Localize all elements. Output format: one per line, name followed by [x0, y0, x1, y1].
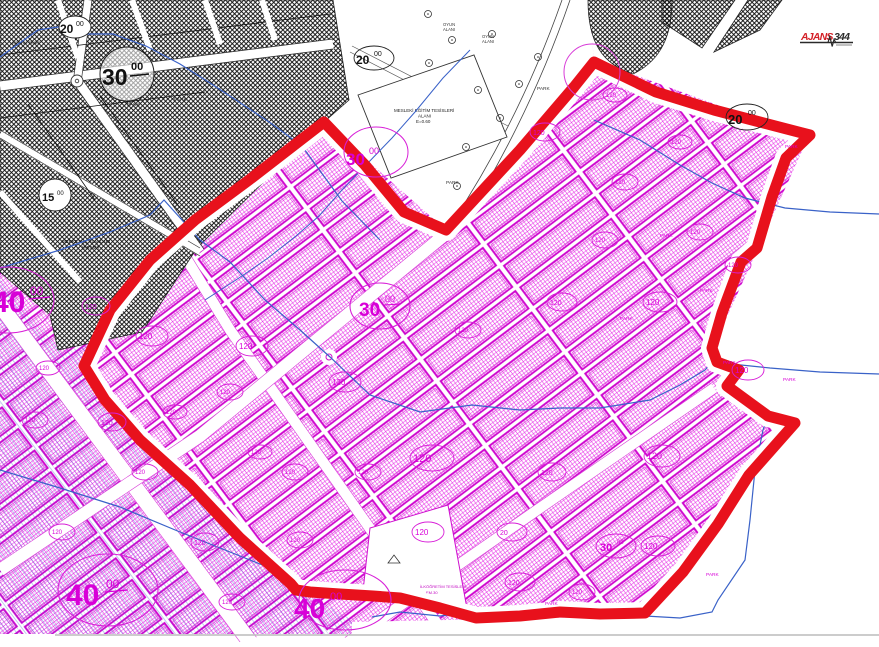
svg-text:20: 20 — [356, 53, 370, 67]
svg-text:PARK: PARK — [700, 288, 714, 294]
svg-text:40: 40 — [66, 579, 99, 612]
svg-text:00: 00 — [76, 21, 84, 28]
svg-text:120: 120 — [550, 300, 562, 307]
svg-text:20: 20 — [500, 530, 508, 537]
svg-text:120: 120 — [728, 263, 739, 269]
svg-text:E=0.60: E=0.60 — [416, 119, 431, 124]
svg-text:PARK: PARK — [446, 180, 460, 186]
svg-text:PARK: PARK — [545, 601, 559, 607]
svg-text:120: 120 — [606, 93, 617, 99]
svg-text:120: 120 — [735, 366, 749, 375]
svg-text:120: 120 — [39, 366, 50, 372]
svg-text:PARK: PARK — [706, 572, 720, 578]
svg-text:120: 120 — [285, 470, 296, 476]
svg-text:120: 120 — [194, 540, 206, 547]
svg-text:İLKÖĞRETİM TESİSLERİ: İLKÖĞRETİM TESİSLERİ — [420, 584, 466, 589]
svg-text:120: 120 — [690, 230, 701, 236]
svg-text:120: 120 — [572, 590, 583, 596]
svg-text:120: 120 — [458, 328, 469, 334]
svg-text:30: 30 — [102, 64, 128, 90]
svg-text:00: 00 — [30, 284, 44, 298]
svg-text:00: 00 — [748, 110, 756, 117]
svg-text:120: 120 — [415, 528, 429, 537]
svg-text:120: 120 — [239, 342, 253, 351]
svg-text:PARK: PARK — [174, 97, 188, 103]
svg-text:120: 120 — [358, 470, 369, 476]
svg-text:00: 00 — [374, 51, 382, 58]
svg-text:120: 120 — [413, 453, 431, 465]
svg-text:30: 30 — [359, 300, 380, 321]
svg-text:30: 30 — [600, 542, 612, 554]
svg-text:PARK: PARK — [723, 360, 737, 366]
svg-text:120: 120 — [139, 332, 153, 341]
svg-text:00: 00 — [57, 191, 64, 197]
svg-text:ALANI: ALANI — [418, 114, 431, 119]
svg-text:344: 344 — [834, 31, 850, 43]
svg-text:00: 00 — [369, 146, 379, 156]
svg-text:40: 40 — [294, 593, 325, 624]
svg-text:PARK: PARK — [660, 233, 674, 239]
svg-text:120: 120 — [647, 451, 662, 461]
svg-text:120: 120 — [508, 580, 520, 587]
svg-text:ALANI: ALANI — [482, 39, 494, 44]
svg-text:120: 120 — [615, 180, 626, 186]
svg-text:SOSYAL TESİS: SOSYAL TESİS — [12, 40, 40, 45]
svg-text:15: 15 — [42, 192, 54, 204]
svg-text:00: 00 — [385, 294, 395, 304]
svg-text:00: 00 — [106, 577, 120, 591]
svg-text:30: 30 — [346, 150, 365, 169]
svg-text:00: 00 — [330, 591, 342, 603]
svg-text:120: 120 — [25, 418, 36, 424]
svg-text:PARK: PARK — [537, 86, 551, 92]
svg-text:00: 00 — [617, 540, 624, 546]
svg-text:120: 120 — [644, 542, 658, 551]
svg-text:20: 20 — [728, 112, 742, 127]
svg-text:120: 120 — [290, 538, 301, 544]
svg-text:120: 120 — [101, 420, 113, 427]
svg-text:120: 120 — [671, 140, 682, 146]
svg-text:120: 120 — [135, 470, 146, 476]
svg-text:120: 120 — [166, 410, 177, 416]
svg-text:PARK: PARK — [783, 377, 797, 383]
svg-text:00: 00 — [131, 61, 143, 73]
svg-text:PARK: PARK — [620, 316, 634, 322]
svg-text:20: 20 — [60, 22, 74, 36]
svg-text:120: 120 — [332, 378, 346, 387]
svg-text:MESLEKİ EĞİTİM TESİSLERİ: MESLEKİ EĞİTİM TESİSLERİ — [394, 107, 454, 113]
svg-text:120: 120 — [533, 130, 545, 137]
svg-text:120: 120 — [251, 450, 262, 456]
svg-text:ALANI: ALANI — [443, 27, 455, 32]
svg-text:120: 120 — [541, 470, 553, 477]
svg-text:PARK: PARK — [127, 102, 141, 108]
svg-text:120: 120 — [646, 298, 660, 307]
svg-text:120: 120 — [220, 390, 231, 396]
svg-text:120: 120 — [595, 238, 606, 244]
svg-text:PARK: PARK — [785, 144, 799, 150]
svg-text:120: 120 — [222, 600, 233, 606]
svg-text:120: 120 — [52, 530, 63, 536]
svg-text:(RESMİ): (RESMİ) — [82, 244, 100, 250]
svg-text:40: 40 — [0, 286, 25, 319]
svg-text:120: 120 — [85, 304, 97, 311]
